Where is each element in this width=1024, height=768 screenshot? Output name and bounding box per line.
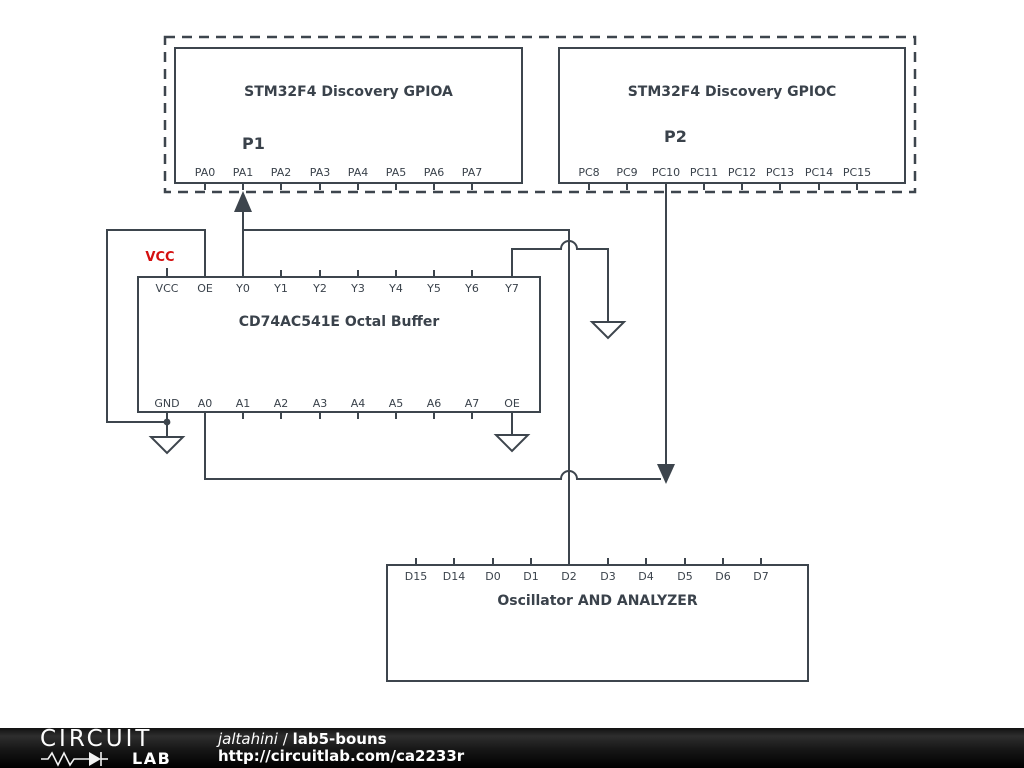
oscillator-title: Oscillator AND ANALYZER	[387, 593, 808, 609]
pin-label-a4: A4	[351, 397, 366, 410]
gpioa-pin-ticks	[205, 183, 472, 190]
ground-icon	[151, 437, 183, 453]
pin-label-y0: Y0	[236, 282, 250, 295]
gpioa-refdes: P1	[242, 134, 265, 153]
pin-label-y2: Y2	[313, 282, 327, 295]
pin-label-d1: D1	[523, 570, 538, 583]
pin-label-pc11: PC11	[690, 166, 718, 179]
pin-label-a5: A5	[389, 397, 404, 410]
pin-label-pc8: PC8	[578, 166, 599, 179]
pin-label-a7: A7	[465, 397, 480, 410]
gpioa-title: STM32F4 Discovery GPIOA	[175, 84, 522, 100]
arrow-down-icon	[657, 464, 675, 484]
resistor-diode-icon	[40, 750, 132, 767]
pin-label-vcc: VCC	[156, 282, 179, 295]
oscillator-pin-ticks	[416, 558, 761, 565]
vcc-net-label: VCC	[145, 250, 174, 265]
pin-label-pc10: PC10	[652, 166, 680, 179]
pin-label-pa0: PA0	[195, 166, 215, 179]
ground-icon	[496, 435, 528, 451]
pin-label-a2: A2	[274, 397, 289, 410]
circuitlab-logo-wordmark-top: CIRCUIT	[40, 729, 180, 750]
project-line: jaltahini / lab5-bouns	[218, 731, 464, 748]
pin-label-y6: Y6	[465, 282, 479, 295]
footer-meta: jaltahini / lab5-bouns http://circuitlab…	[218, 731, 464, 765]
circuitlab-logo: CIRCUIT LAB	[40, 729, 180, 767]
schematic-canvas	[0, 0, 1024, 728]
pin-label-oe-bottom: OE	[504, 397, 520, 410]
pin-label-d3: D3	[600, 570, 615, 583]
pin-label-pa5: PA5	[386, 166, 406, 179]
gpioc-title: STM32F4 Discovery GPIOC	[559, 84, 905, 100]
pin-label-pa4: PA4	[348, 166, 368, 179]
pin-label-d7: D7	[753, 570, 768, 583]
arrow-up-icon	[234, 191, 252, 212]
wire-y7-to-ground	[512, 241, 608, 322]
pin-label-d5: D5	[677, 570, 692, 583]
pin-label-y5: Y5	[427, 282, 441, 295]
username-text: jaltahini	[218, 730, 278, 748]
circuit-url-text: http://circuitlab.com/ca2233r	[218, 748, 464, 765]
wire-a0-to-pc10	[205, 412, 661, 479]
pin-label-d2: D2	[561, 570, 576, 583]
pin-label-pa2: PA2	[271, 166, 291, 179]
pin-label-y4: Y4	[389, 282, 403, 295]
pin-label-pa6: PA6	[424, 166, 444, 179]
circuitlab-logo-wordmark-bottom: LAB	[132, 751, 171, 767]
pin-label-pc12: PC12	[728, 166, 756, 179]
buffer-top-pin-ticks	[167, 268, 472, 277]
pin-label-y1: Y1	[274, 282, 288, 295]
ground-icon	[592, 322, 624, 338]
pin-label-a1: A1	[236, 397, 251, 410]
pin-label-gnd: GND	[154, 397, 179, 410]
pin-label-pc9: PC9	[616, 166, 637, 179]
pin-label-pa1: PA1	[233, 166, 253, 179]
pin-label-d4: D4	[638, 570, 653, 583]
gpioa-component-box	[175, 48, 522, 183]
gpioc-refdes: P2	[664, 127, 687, 146]
circuitlab-footer-bar: CIRCUIT LAB jaltahini / lab5-bouns	[0, 728, 1024, 768]
pin-label-pc13: PC13	[766, 166, 794, 179]
pin-label-a3: A3	[313, 397, 328, 410]
junction-dot	[164, 419, 171, 426]
pin-label-d15: D15	[405, 570, 427, 583]
buffer-bottom-pin-ticks	[243, 412, 472, 419]
pin-label-oe-top: OE	[197, 282, 213, 295]
pin-label-a6: A6	[427, 397, 442, 410]
circuit-schematic-page: STM32F4 Discovery GPIOA P1 PA0 PA1 PA2 P…	[0, 0, 1024, 768]
pin-label-d0: D0	[485, 570, 500, 583]
pin-label-pc14: PC14	[805, 166, 833, 179]
pin-label-a0: A0	[198, 397, 213, 410]
pin-label-d14: D14	[443, 570, 465, 583]
pin-label-pc15: PC15	[843, 166, 871, 179]
pin-label-pa7: PA7	[462, 166, 482, 179]
buffer-component-box	[138, 277, 540, 412]
project-name-text: lab5-bouns	[293, 730, 387, 748]
pin-label-y3: Y3	[351, 282, 365, 295]
gpioc-pin-ticks	[589, 183, 857, 190]
pin-label-d6: D6	[715, 570, 730, 583]
buffer-title: CD74AC541E Octal Buffer	[138, 314, 540, 330]
pin-label-pa3: PA3	[310, 166, 330, 179]
separator-text: /	[283, 730, 288, 748]
gpioc-component-box	[559, 48, 905, 183]
pin-label-y7: Y7	[505, 282, 519, 295]
